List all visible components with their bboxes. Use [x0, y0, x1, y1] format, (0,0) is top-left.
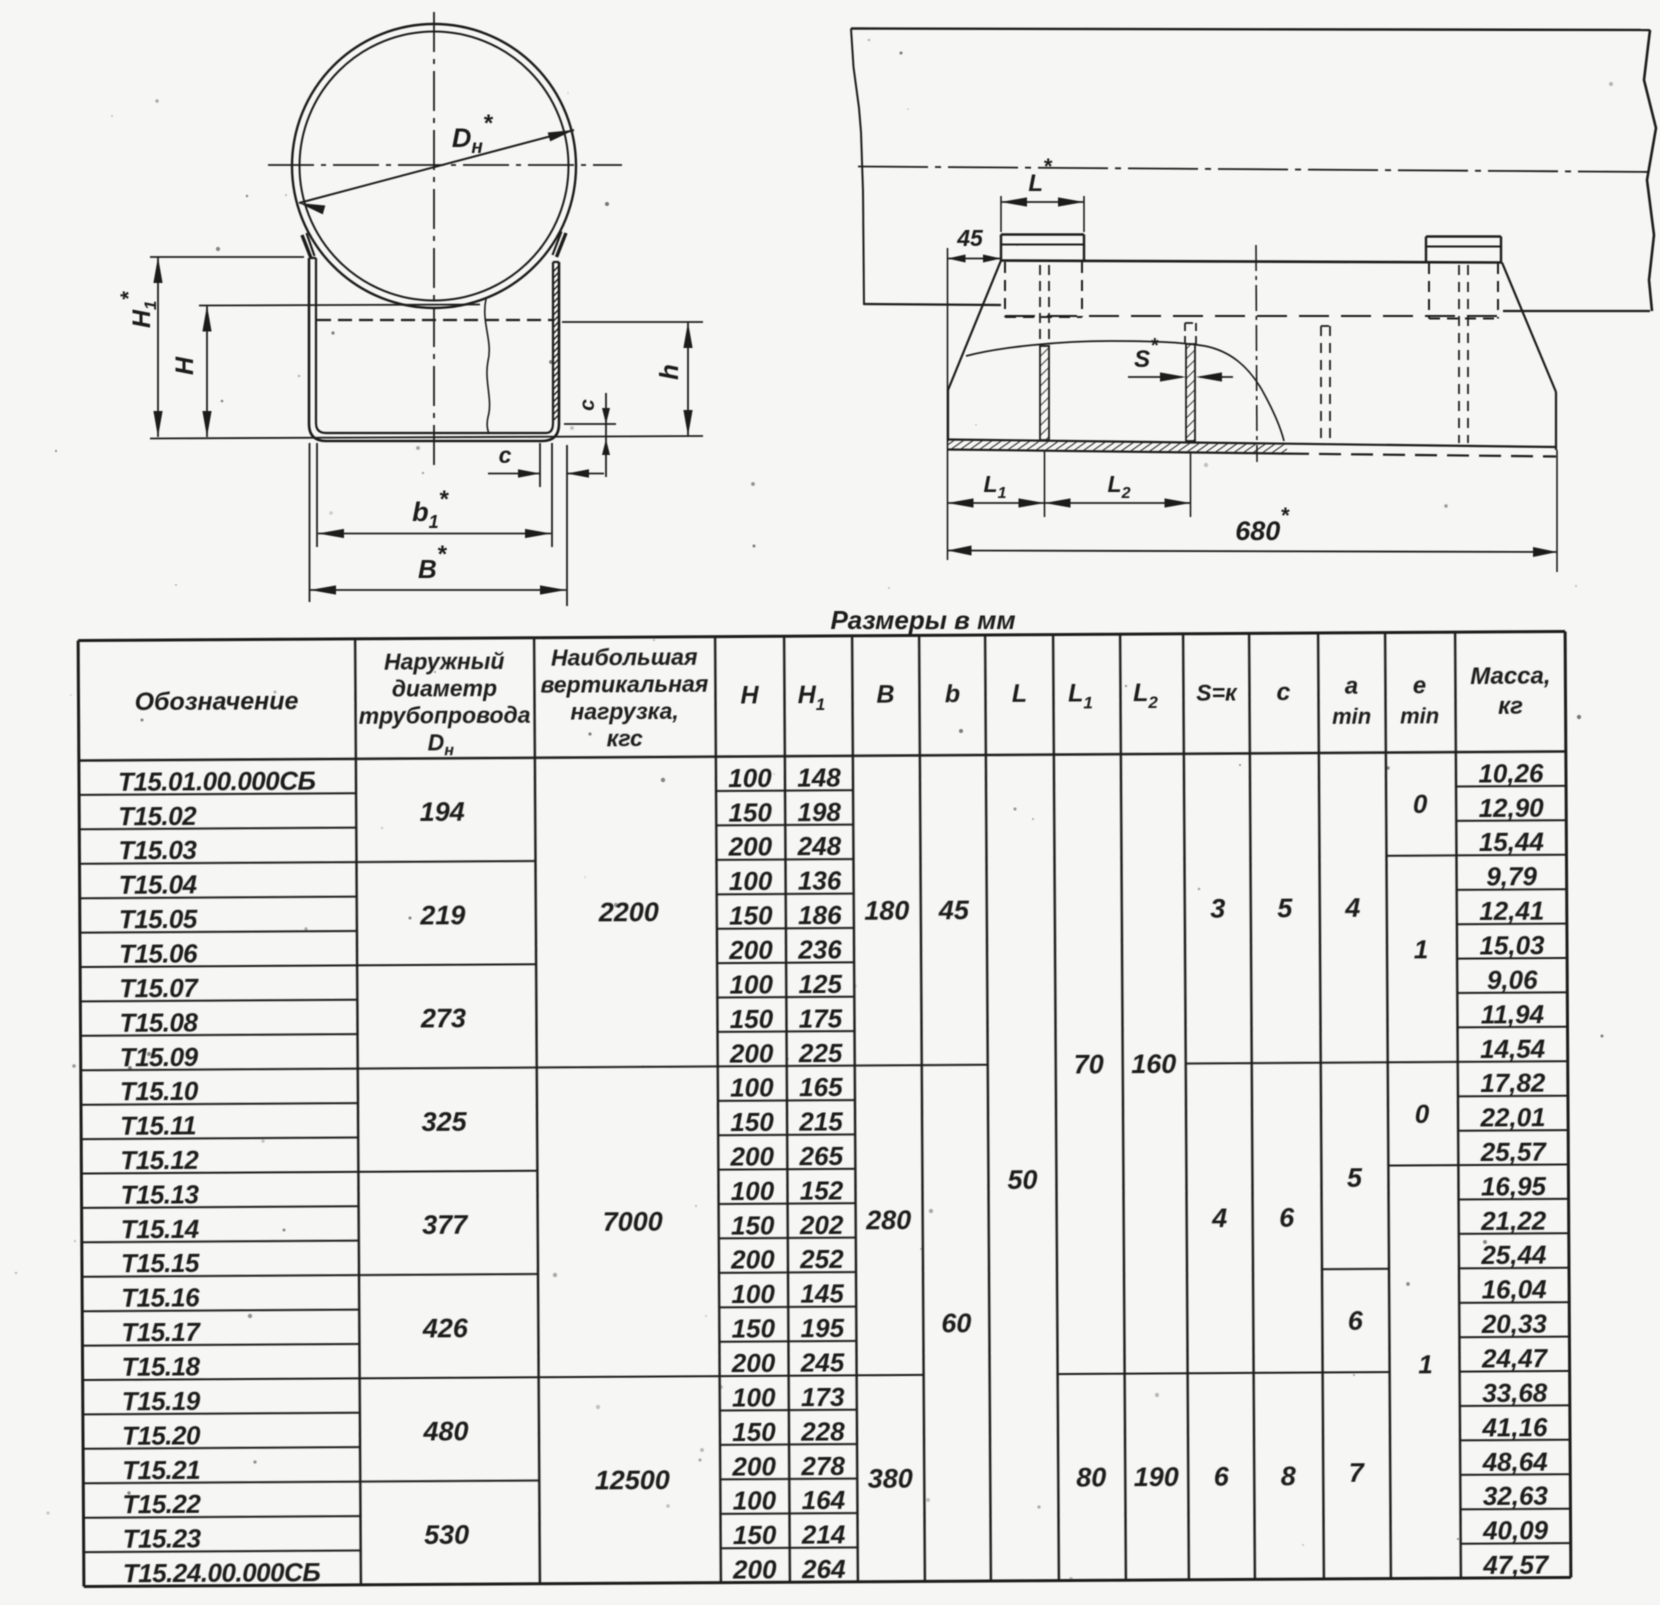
svg-text:17,82: 17,82 — [1480, 1068, 1546, 1098]
svg-text:150: 150 — [731, 1210, 775, 1240]
svg-text:Наибольшая: Наибольшая — [551, 644, 698, 671]
svg-text:480: 480 — [422, 1416, 468, 1446]
svg-text:252: 252 — [799, 1244, 844, 1274]
svg-text:228: 228 — [800, 1416, 845, 1446]
svg-text:9,79: 9,79 — [1486, 861, 1537, 891]
svg-text:6: 6 — [1348, 1306, 1364, 1336]
svg-text:12,41: 12,41 — [1479, 896, 1544, 926]
svg-text:Т15.03: Т15.03 — [118, 835, 197, 865]
svg-text:200: 200 — [731, 1451, 776, 1481]
svg-text:Масса,: Масса, — [1470, 663, 1551, 690]
svg-text:Т15.14: Т15.14 — [121, 1214, 200, 1244]
svg-text:325: 325 — [421, 1107, 467, 1137]
svg-text:1: 1 — [1414, 934, 1429, 964]
svg-text:15,44: 15,44 — [1479, 827, 1545, 857]
svg-text:264: 264 — [801, 1554, 846, 1584]
svg-text:48,64: 48,64 — [1482, 1446, 1549, 1476]
svg-text:8: 8 — [1281, 1461, 1296, 1491]
svg-text:25,44: 25,44 — [1480, 1240, 1547, 1270]
svg-text:248: 248 — [797, 831, 842, 861]
svg-text:200: 200 — [728, 832, 773, 862]
svg-text:150: 150 — [732, 1313, 776, 1343]
svg-text:200: 200 — [730, 1141, 775, 1171]
svg-text:148: 148 — [797, 762, 841, 792]
svg-text:Т15.11: Т15.11 — [120, 1110, 196, 1140]
svg-text:5: 5 — [1277, 893, 1293, 923]
svg-text:150: 150 — [728, 797, 772, 827]
svg-text:Т15.19: Т15.19 — [122, 1386, 201, 1416]
svg-text:14,54: 14,54 — [1480, 1033, 1546, 1063]
svg-text:Т15.16: Т15.16 — [121, 1283, 200, 1313]
svg-text:150: 150 — [730, 1004, 774, 1034]
svg-text:16,04: 16,04 — [1481, 1274, 1547, 1304]
svg-text:Размеры в мм: Размеры в мм — [830, 605, 1015, 635]
svg-text:4: 4 — [1344, 893, 1360, 923]
svg-text:202: 202 — [799, 1210, 844, 1240]
svg-text:150: 150 — [730, 1107, 774, 1137]
svg-text:278: 278 — [800, 1451, 845, 1481]
svg-text:200: 200 — [732, 1554, 777, 1584]
svg-text:200: 200 — [731, 1348, 776, 1378]
svg-text:225: 225 — [798, 1038, 843, 1068]
svg-text:60: 60 — [941, 1308, 971, 1338]
svg-text:h: h — [654, 364, 684, 380]
svg-text:200: 200 — [728, 935, 773, 965]
svg-text:12500: 12500 — [595, 1465, 670, 1495]
svg-text:245: 245 — [800, 1347, 845, 1377]
svg-text:9,06: 9,06 — [1487, 965, 1538, 995]
svg-text:150: 150 — [729, 900, 773, 930]
svg-text:Т15.09: Т15.09 — [120, 1042, 199, 1072]
svg-text:100: 100 — [729, 969, 773, 999]
svg-text:Т15.08: Т15.08 — [119, 1007, 198, 1037]
svg-text:2200: 2200 — [598, 897, 659, 927]
svg-text:100: 100 — [728, 763, 772, 793]
svg-text:164: 164 — [802, 1485, 846, 1515]
svg-text:100: 100 — [729, 866, 773, 896]
svg-text:3: 3 — [1210, 893, 1225, 923]
svg-text:Т15.01.00.000СБ: Т15.01.00.000СБ — [118, 766, 316, 797]
svg-text:11,94: 11,94 — [1481, 999, 1545, 1029]
svg-text:4: 4 — [1211, 1203, 1227, 1233]
svg-text:136: 136 — [798, 866, 842, 896]
svg-text:Т15.05: Т15.05 — [119, 904, 198, 934]
svg-text:Наружный: Наружный — [384, 648, 505, 675]
svg-text:47,57: 47,57 — [1482, 1550, 1550, 1580]
svg-text:165: 165 — [799, 1072, 843, 1102]
svg-text:Т15.15: Т15.15 — [121, 1248, 200, 1278]
svg-text:Т15.06: Т15.06 — [119, 938, 198, 968]
svg-text:15,03: 15,03 — [1479, 930, 1545, 960]
svg-text:a: a — [1345, 673, 1359, 700]
svg-text:21,22: 21,22 — [1480, 1205, 1547, 1235]
svg-text:24,47: 24,47 — [1481, 1343, 1549, 1373]
svg-text:152: 152 — [800, 1175, 844, 1205]
svg-text:150: 150 — [732, 1417, 776, 1447]
svg-text:кг: кг — [1498, 693, 1523, 720]
svg-text:Т15.13: Т15.13 — [120, 1179, 199, 1209]
svg-text:Т15.21: Т15.21 — [122, 1455, 200, 1485]
svg-text:45: 45 — [938, 895, 970, 925]
svg-text:100: 100 — [731, 1279, 775, 1309]
svg-text:273: 273 — [420, 1003, 466, 1033]
svg-text:диаметр: диаметр — [392, 675, 498, 702]
svg-text:150: 150 — [733, 1520, 777, 1550]
svg-text:380: 380 — [868, 1463, 913, 1493]
svg-text:Т15.10: Т15.10 — [120, 1076, 199, 1106]
svg-text:198: 198 — [797, 797, 841, 827]
svg-text:кгс: кгс — [607, 725, 644, 751]
svg-text:125: 125 — [798, 969, 842, 999]
svg-text:180: 180 — [864, 895, 909, 925]
svg-text:236: 236 — [797, 934, 842, 964]
svg-text:7000: 7000 — [603, 1207, 663, 1237]
svg-text:Т15.04: Т15.04 — [119, 870, 198, 900]
svg-text:Т15.18: Т15.18 — [121, 1351, 200, 1381]
svg-text:5: 5 — [1347, 1163, 1363, 1193]
svg-text:Т15.24.00.000СБ: Т15.24.00.000СБ — [123, 1557, 321, 1588]
svg-text:33,68: 33,68 — [1482, 1377, 1548, 1407]
svg-text:145: 145 — [800, 1279, 844, 1309]
svg-text:426: 426 — [422, 1313, 469, 1343]
svg-text:195: 195 — [801, 1313, 845, 1343]
svg-text:0: 0 — [1415, 1099, 1430, 1129]
svg-text:e: e — [1413, 672, 1427, 699]
svg-text:Т15.17: Т15.17 — [121, 1317, 201, 1347]
svg-text:20,33: 20,33 — [1481, 1309, 1548, 1339]
svg-text:Т15.20: Т15.20 — [122, 1420, 201, 1450]
svg-text:100: 100 — [732, 1382, 776, 1412]
svg-text:32,63: 32,63 — [1483, 1481, 1549, 1511]
svg-text:Т15.07: Т15.07 — [119, 973, 199, 1003]
svg-text:280: 280 — [865, 1205, 911, 1235]
svg-text:200: 200 — [729, 1038, 774, 1068]
svg-text:вертикальная: вертикальная — [540, 671, 708, 698]
svg-text:50: 50 — [1007, 1165, 1037, 1195]
svg-text:Т15.23: Т15.23 — [123, 1523, 202, 1553]
svg-text:S=к: S=к — [1196, 679, 1238, 705]
svg-text:b: b — [945, 680, 960, 708]
svg-text:190: 190 — [1134, 1462, 1179, 1492]
svg-text:377: 377 — [422, 1210, 469, 1240]
svg-text:6: 6 — [1214, 1461, 1230, 1491]
svg-text:min: min — [1400, 703, 1439, 728]
svg-text:173: 173 — [801, 1382, 845, 1412]
svg-text:100: 100 — [730, 1073, 774, 1103]
svg-text:1: 1 — [1418, 1349, 1433, 1379]
svg-text:265: 265 — [799, 1141, 844, 1171]
svg-text:Т15.02: Т15.02 — [118, 801, 197, 831]
svg-text:41,16: 41,16 — [1481, 1412, 1548, 1442]
svg-text:7: 7 — [1349, 1457, 1366, 1487]
svg-text:Т15.22: Т15.22 — [122, 1489, 201, 1519]
svg-text:214: 214 — [801, 1519, 846, 1549]
svg-text:100: 100 — [731, 1176, 775, 1206]
svg-text:трубопровода: трубопровода — [359, 702, 531, 729]
svg-text:12,90: 12,90 — [1479, 792, 1545, 822]
svg-text:175: 175 — [799, 1003, 843, 1033]
svg-text:min: min — [1332, 704, 1371, 729]
svg-text:25,57: 25,57 — [1480, 1137, 1548, 1167]
svg-text:Н: Н — [171, 356, 199, 375]
svg-text:c: c — [576, 399, 599, 411]
svg-text:Т15.12: Т15.12 — [120, 1145, 199, 1175]
svg-text:22,01: 22,01 — [1479, 1102, 1545, 1132]
svg-text:Обозначение: Обозначение — [135, 687, 299, 716]
svg-text:530: 530 — [424, 1520, 469, 1550]
svg-text:80: 80 — [1076, 1462, 1106, 1492]
svg-text:194: 194 — [420, 797, 465, 827]
svg-text:186: 186 — [798, 900, 842, 930]
svg-text:40,09: 40,09 — [1482, 1515, 1549, 1545]
svg-text:c: c — [1276, 678, 1290, 706]
svg-text:Н: Н — [740, 681, 759, 709]
svg-text:0: 0 — [1413, 789, 1428, 819]
svg-text:100: 100 — [733, 1485, 777, 1515]
svg-text:215: 215 — [798, 1106, 843, 1136]
svg-text:160: 160 — [1131, 1049, 1176, 1079]
svg-text:16,95: 16,95 — [1481, 1171, 1547, 1201]
svg-text:200: 200 — [730, 1245, 775, 1275]
svg-text:c: c — [499, 442, 512, 468]
svg-text:L: L — [1012, 680, 1027, 708]
svg-text:нагрузка,: нагрузка, — [570, 698, 679, 725]
svg-text:70: 70 — [1074, 1049, 1104, 1079]
svg-text:219: 219 — [419, 900, 465, 930]
svg-text:45: 45 — [956, 225, 984, 251]
svg-text:В: В — [876, 681, 894, 709]
svg-text:10,26: 10,26 — [1478, 758, 1544, 788]
svg-text:6: 6 — [1279, 1203, 1295, 1233]
